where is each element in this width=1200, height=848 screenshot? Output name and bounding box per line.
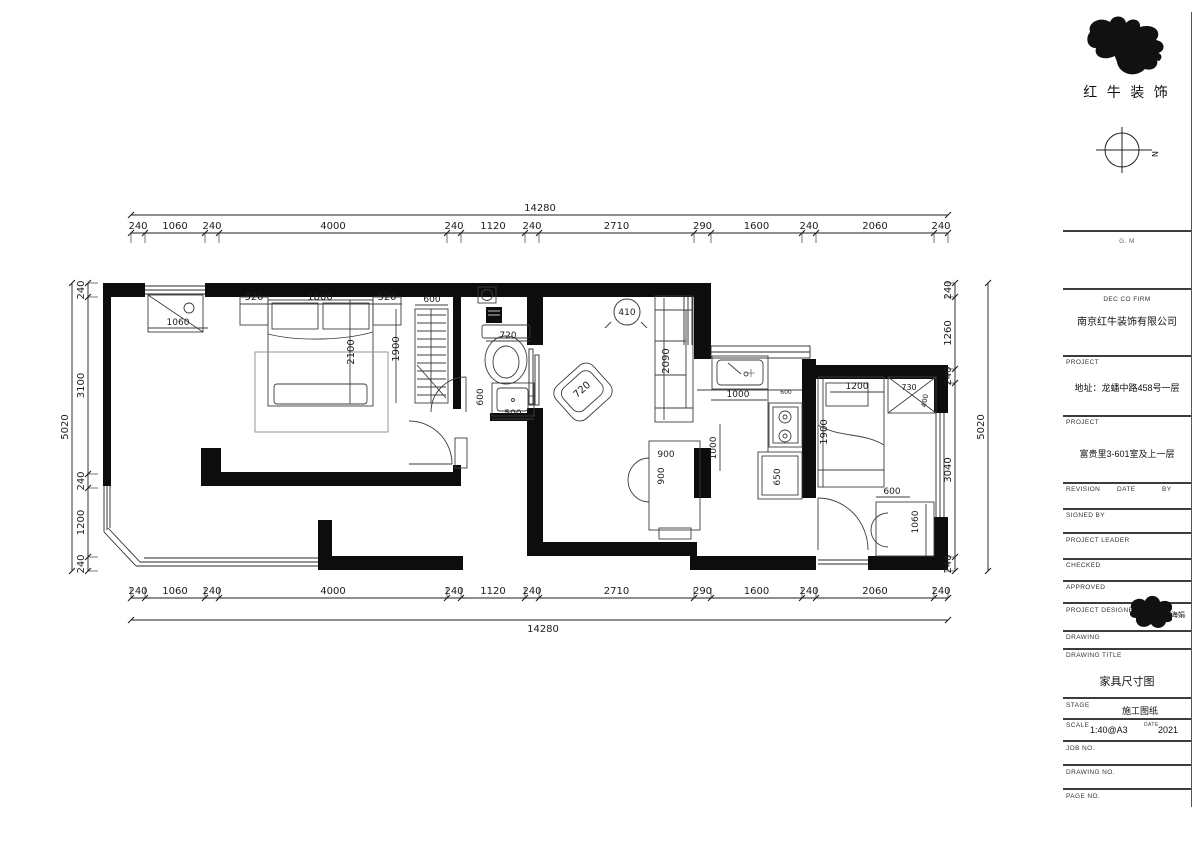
tb-job-no: JOB NO. xyxy=(1066,745,1095,752)
tb-drawing-label: DRAWING xyxy=(1066,634,1100,641)
dim-label: 1900 xyxy=(391,336,402,361)
dim-label: 290 xyxy=(693,586,712,597)
tb-drawing-title: 家具尺寸图 xyxy=(1063,673,1191,689)
dim-label: 2100 xyxy=(346,339,357,364)
tb-scale-value: 1:40@A3 xyxy=(1090,725,1128,735)
dim-label: 1200 xyxy=(76,510,87,535)
dim-label: 600 xyxy=(883,487,900,497)
dim-label: 240 xyxy=(444,221,463,232)
tb-rule xyxy=(1063,580,1191,582)
tb-approved: APPROVED xyxy=(1066,584,1105,591)
tb-rule xyxy=(1063,508,1191,510)
bedroom1-bed xyxy=(240,297,401,406)
bathroom xyxy=(431,287,535,468)
dim-label: 5020 xyxy=(976,414,987,439)
tb-rule xyxy=(1063,630,1191,632)
dim-label: 1120 xyxy=(480,586,505,597)
dim-label: 2710 xyxy=(604,221,629,232)
dim-label: 2060 xyxy=(862,586,887,597)
dim-label: 1600 xyxy=(744,586,769,597)
tb-rule xyxy=(1063,648,1191,650)
compass-icon xyxy=(1096,127,1152,173)
dim-label: 240 xyxy=(522,221,541,232)
tb-project-leader: PROJECT LEADER xyxy=(1066,537,1130,544)
dim-label: 2710 xyxy=(604,586,629,597)
dim-label: 410 xyxy=(618,308,635,318)
dim-label: 600 xyxy=(780,389,792,396)
dim-label: 600 xyxy=(476,388,486,405)
dim-label: 650 xyxy=(773,468,783,485)
dim-label: 720 xyxy=(572,380,594,401)
dim-label: 240 xyxy=(522,586,541,597)
tb-signed-by: SIGNED BY xyxy=(1066,512,1105,519)
dim-label: 1120 xyxy=(480,221,505,232)
dim-label: 1000 xyxy=(709,436,719,459)
dim-label: 240 xyxy=(202,221,221,232)
dim-label: 240 xyxy=(76,280,87,299)
tb-firm-name: 南京红牛装饰有限公司 xyxy=(1063,313,1191,328)
dim-label: 240 xyxy=(76,554,87,573)
dim-label: 900 xyxy=(657,450,674,460)
tb-scale-label: SCALE xyxy=(1066,722,1089,729)
tb-rule xyxy=(1063,718,1191,720)
tb-rule xyxy=(1063,788,1191,790)
dim-label: 5020 xyxy=(60,414,71,439)
dim-label: 2090 xyxy=(661,348,672,373)
tb-firm-label: DEC CO FIRM xyxy=(1063,296,1191,303)
floor-plan-svg: 2401060240400024011202402710290160024020… xyxy=(0,0,1060,848)
tb-rule xyxy=(1063,288,1191,290)
tb-by-label: BY xyxy=(1162,486,1171,493)
dim-label: 1000 xyxy=(727,390,750,400)
tb-drawing-title-label: DRAWING TITLE xyxy=(1066,652,1122,659)
dim-label: 1200 xyxy=(846,382,869,392)
compass-north-label: N xyxy=(1151,151,1160,157)
redbull-logo-icon xyxy=(1087,16,1163,74)
logo-compass-svg: N xyxy=(1063,10,1191,225)
dim-label: 240 xyxy=(931,586,950,597)
dim-label: 520 xyxy=(244,292,263,303)
dim-label: 240 xyxy=(799,586,818,597)
dim-label: 1060 xyxy=(162,221,187,232)
tb-date-label: DATE xyxy=(1117,486,1135,493)
dim-label: 240 xyxy=(128,586,147,597)
tb-revision-label: REVISION xyxy=(1066,486,1100,493)
tb-rule xyxy=(1063,230,1191,232)
bedroom1-rug xyxy=(255,352,388,432)
tb-date-label2: DATE xyxy=(1144,722,1159,728)
dim-label: 3040 xyxy=(943,457,954,482)
dim-label: 240 xyxy=(202,586,221,597)
dim-label: 730 xyxy=(901,383,916,392)
dim-label: 720 xyxy=(499,331,516,341)
tb-stage-label: STAGE xyxy=(1066,702,1090,709)
dim-label: 240 xyxy=(943,554,954,573)
dim-label: 240 xyxy=(128,221,147,232)
dim-label: 240 xyxy=(943,280,954,299)
bedroom1-door xyxy=(409,421,452,464)
tb-rule xyxy=(1063,764,1191,766)
dim-label: 240 xyxy=(943,366,954,385)
logo-text: 红 牛 装 饰 xyxy=(1063,82,1191,102)
dim-label: 1900 xyxy=(819,419,830,444)
drawing-sheet: { "header": {"logo_text": "红 牛 装 饰", "co… xyxy=(0,0,1200,848)
dim-label: 1800 xyxy=(307,292,332,303)
dim-label: 240 xyxy=(799,221,818,232)
dim-label: 14280 xyxy=(524,203,556,214)
tb-rule xyxy=(1063,558,1191,560)
tb-rule xyxy=(1063,740,1191,742)
dim-label: 520 xyxy=(377,292,396,303)
dim-label: 1060 xyxy=(162,586,187,597)
dim-label: 240 xyxy=(931,221,950,232)
tb-checked: CHECKED xyxy=(1066,562,1101,569)
tb-page-no: PAGE NO. xyxy=(1066,793,1100,800)
dim-label: 500 xyxy=(504,409,521,419)
tb-designer-name: 朱海娟 xyxy=(1164,610,1185,620)
tb-rule xyxy=(1063,532,1191,534)
dim-label: 4000 xyxy=(320,586,345,597)
dim-label: 600 xyxy=(423,295,440,305)
dim-label: 290 xyxy=(693,221,712,232)
tb-note: G. M xyxy=(1063,238,1191,245)
tb-project-address: 地址：龙蟠中路458号一层 xyxy=(1063,381,1191,394)
kitchen xyxy=(697,356,802,499)
tb-stage-value: 施工图纸 xyxy=(1122,704,1158,717)
tb-project-label2: PROJECT xyxy=(1066,419,1099,426)
dim-label: 400 xyxy=(920,393,930,408)
dim-label: 3100 xyxy=(76,373,87,398)
tb-project-name: 富贵里3-601室及上一层 xyxy=(1063,447,1191,460)
tb-rule xyxy=(1063,697,1191,699)
dim-label: 2060 xyxy=(862,221,887,232)
tb-rule xyxy=(1063,482,1191,484)
dim-label: 1260 xyxy=(943,320,954,345)
dim-label: 4000 xyxy=(320,221,345,232)
tb-drawing-no: DRAWING NO. xyxy=(1066,769,1115,776)
bedroom1-closet xyxy=(415,309,448,403)
titleblock-right-border xyxy=(1191,12,1192,807)
tb-rule xyxy=(1063,355,1191,357)
dim-label: 900 xyxy=(657,467,667,484)
dim-label: 1600 xyxy=(744,221,769,232)
tb-rule xyxy=(1063,415,1191,417)
dim-label: 240 xyxy=(76,471,87,490)
tb-project-label: PROJECT xyxy=(1066,359,1099,366)
dim-label: 240 xyxy=(444,586,463,597)
dim-label: 1060 xyxy=(911,510,921,533)
dim-label: 1060 xyxy=(167,318,190,328)
tb-date-value: 2021 xyxy=(1158,725,1178,735)
dim-label: 14280 xyxy=(527,624,559,635)
